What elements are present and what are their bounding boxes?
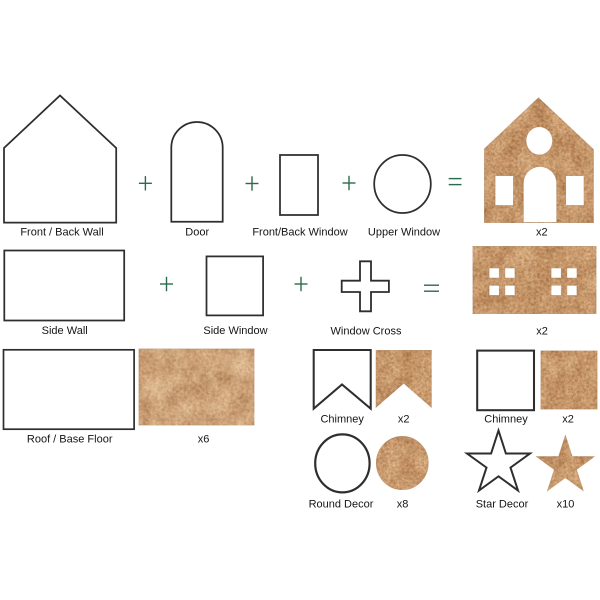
svg-text:Round Decor: Round Decor (309, 499, 374, 511)
svg-text:Upper Window: Upper Window (368, 227, 440, 239)
svg-text:Star Decor: Star Decor (476, 499, 529, 511)
svg-text:Front/Back Window: Front/Back Window (252, 227, 347, 239)
svg-text:x6: x6 (198, 434, 210, 446)
svg-text:Front / Back Wall: Front / Back Wall (20, 227, 103, 239)
svg-text:Chimney: Chimney (320, 414, 364, 426)
svg-text:Side Wall: Side Wall (42, 325, 88, 337)
svg-text:Roof / Base Floor: Roof / Base Floor (27, 434, 113, 446)
svg-text:x8: x8 (397, 499, 409, 511)
svg-text:Door: Door (185, 227, 209, 239)
svg-text:Side Window: Side Window (203, 325, 267, 337)
svg-text:x2: x2 (536, 325, 548, 337)
svg-text:Window Cross: Window Cross (331, 326, 402, 338)
svg-text:x2: x2 (398, 414, 410, 426)
svg-text:x10: x10 (557, 499, 575, 511)
svg-text:x2: x2 (536, 227, 548, 239)
svg-text:Chimney: Chimney (484, 414, 528, 426)
svg-text:x2: x2 (562, 414, 574, 426)
